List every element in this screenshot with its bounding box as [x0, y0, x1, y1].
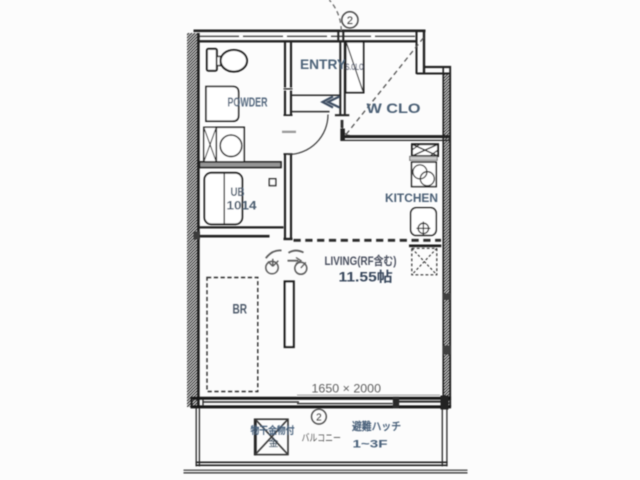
- svg-text:バルコニー: バルコニー: [302, 433, 342, 445]
- svg-text:物干金物付: 物干金物付: [251, 424, 295, 437]
- svg-text:LIVING(RF含む): LIVING(RF含む): [325, 253, 397, 268]
- svg-text:W CLO: W CLO: [367, 100, 421, 116]
- svg-text:避難ハッチ: 避難ハッチ: [352, 419, 401, 433]
- svg-text:2: 2: [316, 412, 322, 423]
- svg-text:11.55帖: 11.55帖: [339, 269, 394, 285]
- svg-text:金: 金: [269, 437, 279, 450]
- svg-text:UB: UB: [231, 185, 245, 199]
- svg-text:1650 × 2000: 1650 × 2000: [312, 382, 382, 396]
- svg-text:2: 2: [347, 15, 353, 27]
- svg-text:1014: 1014: [227, 199, 257, 213]
- svg-text:1~3F: 1~3F: [353, 439, 388, 451]
- svg-text:S.CLO: S.CLO: [346, 62, 364, 72]
- svg-text:ENTRY: ENTRY: [300, 56, 347, 72]
- svg-text:POWDER: POWDER: [228, 95, 268, 110]
- svg-text:KITCHEN: KITCHEN: [385, 193, 438, 205]
- svg-text:BR: BR: [233, 302, 248, 317]
